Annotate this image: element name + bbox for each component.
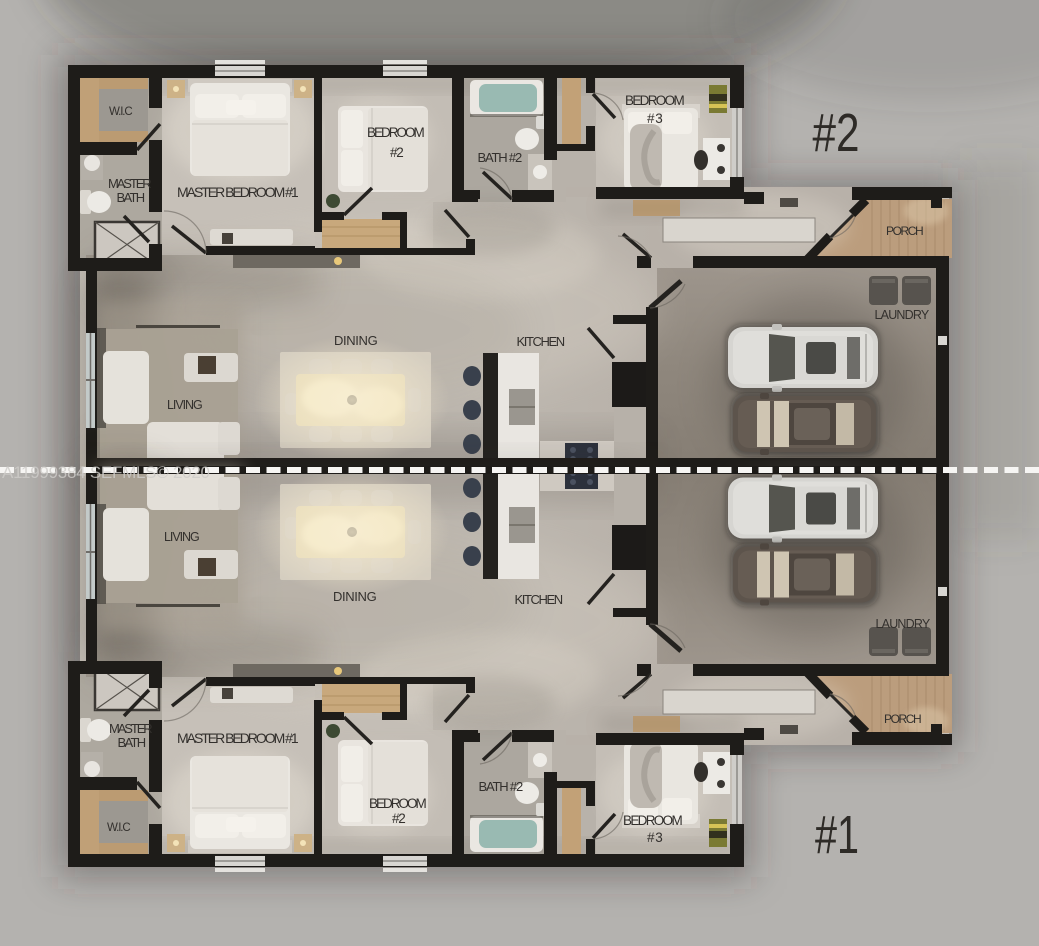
svg-text:#2: #2: [813, 103, 860, 163]
svg-text:MASTER: MASTER: [109, 721, 153, 736]
svg-text:BEDROOM: BEDROOM: [625, 93, 685, 108]
svg-text:#1: #1: [815, 805, 859, 865]
svg-text:BATH: BATH: [118, 735, 147, 750]
svg-text:#3: #3: [647, 111, 663, 126]
svg-text:BEDROOM: BEDROOM: [623, 813, 683, 828]
svg-text:#2: #2: [390, 145, 404, 160]
svg-text:BATH #2: BATH #2: [479, 779, 524, 794]
svg-text:BATH: BATH: [117, 190, 146, 205]
svg-text:W.I.C: W.I.C: [109, 106, 133, 118]
svg-text:A11999384 SEFMLS© 2020: A11999384 SEFMLS© 2020: [2, 463, 210, 482]
svg-text:LIVING: LIVING: [164, 530, 200, 544]
svg-text:PORCH: PORCH: [886, 224, 924, 238]
svg-text:LAUNDRY: LAUNDRY: [876, 617, 931, 631]
svg-text:MASTER: MASTER: [108, 176, 152, 191]
svg-text:#2: #2: [392, 811, 406, 826]
svg-text:MASTER BEDROOM #1: MASTER BEDROOM #1: [177, 730, 299, 746]
svg-text:MASTER BEDROOM #1: MASTER BEDROOM #1: [177, 184, 299, 200]
svg-text:KITCHEN: KITCHEN: [517, 334, 566, 349]
svg-text:#3: #3: [647, 830, 663, 845]
svg-text:DINING: DINING: [334, 333, 378, 348]
svg-text:BEDROOM: BEDROOM: [367, 125, 425, 140]
svg-text:BATH #2: BATH #2: [478, 150, 523, 165]
svg-text:BEDROOM: BEDROOM: [369, 796, 427, 811]
svg-text:KITCHEN: KITCHEN: [515, 592, 564, 607]
svg-text:DINING: DINING: [333, 589, 377, 604]
svg-text:W.I.C: W.I.C: [107, 822, 131, 834]
svg-text:PORCH: PORCH: [884, 712, 922, 726]
svg-text:LAUNDRY: LAUNDRY: [875, 308, 930, 322]
svg-text:LIVING: LIVING: [167, 398, 203, 412]
